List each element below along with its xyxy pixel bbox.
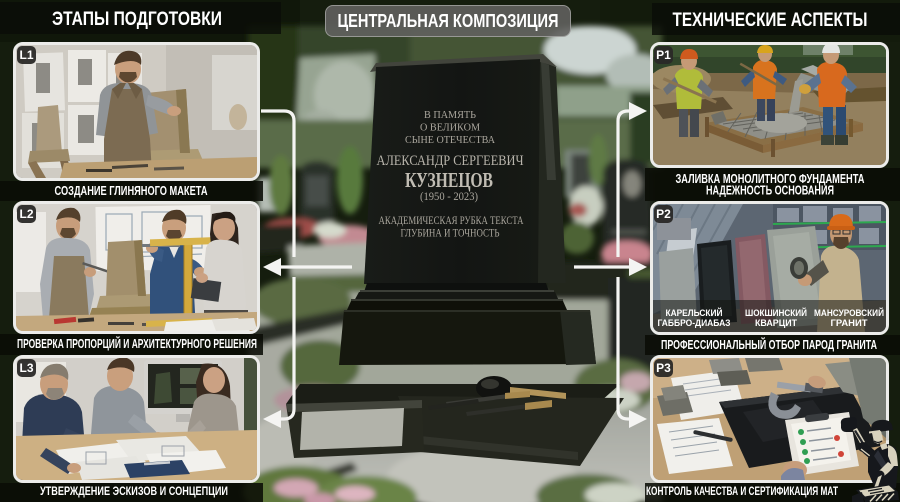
svg-text:ЭТАПЫ ПОДГОТОВКИ: ЭТАПЫ ПОДГОТОВКИ <box>52 9 222 30</box>
svg-text:ШОКШИНСКИЙ: ШОКШИНСКИЙ <box>745 307 807 318</box>
svg-text:ТЕХНИЧЕСКИЕ АСПЕКТЫ: ТЕХНИЧЕСКИЕ АСПЕКТЫ <box>673 10 868 31</box>
svg-text:МАНСУРОВСКИЙ: МАНСУРОВСКИЙ <box>814 307 884 318</box>
svg-text:ПРОВЕРКА ПРОПОРЦИЙ И АРХИТЕКТУ: ПРОВЕРКА ПРОПОРЦИЙ И АРХИТЕКТУРНОГО РЕШЕ… <box>17 336 257 351</box>
svg-text:ПРОФЕССИОНАЛЬНЫЙ ОТБОР ПАРОД Г: ПРОФЕССИОНАЛЬНЫЙ ОТБОР ПАРОД ГРАНИТА <box>661 337 877 352</box>
svg-text:НАДЕЖНОСТЬ ОСНОВАНИЯ: НАДЕЖНОСТЬ ОСНОВАНИЯ <box>706 184 834 198</box>
svg-text:СОЗДАНИЕ ГЛИНЯНОГО МАКЕТА: СОЗДАНИЕ ГЛИНЯНОГО МАКЕТА <box>55 184 208 198</box>
svg-text:КАРЕЛЬСКИЙ: КАРЕЛЬСКИЙ <box>666 307 723 318</box>
svg-text:УТВЕРЖДЕНИЕ ЭСКИЗОВ И СОНЦЕПЦИ: УТВЕРЖДЕНИЕ ЭСКИЗОВ И СОНЦЕПЦИИ <box>40 484 228 498</box>
svg-text:КОНТРОЛЬ КАЧЕСТВА И СЕРТИФИКАЦ: КОНТРОЛЬ КАЧЕСТВА И СЕРТИФИКАЦИЯ МАТ <box>646 484 838 498</box>
svg-text:КВАРЦИТ: КВАРЦИТ <box>755 318 797 328</box>
svg-text:ГАББРО-ДИАБАЗ: ГАББРО-ДИАБАЗ <box>658 318 731 328</box>
svg-text:ЦЕНТРАЛЬНАЯ КОМПОЗИЦИЯ: ЦЕНТРАЛЬНАЯ КОМПОЗИЦИЯ <box>338 11 559 31</box>
svg-text:ГРАНИТ: ГРАНИТ <box>831 318 869 328</box>
